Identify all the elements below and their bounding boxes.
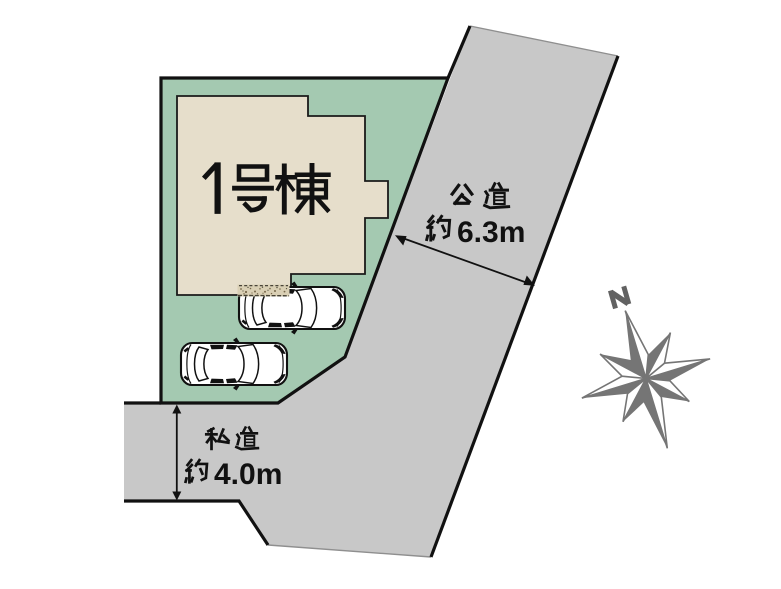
svg-text:4.0m: 4.0m [214, 458, 282, 491]
svg-text:6.3m: 6.3m [457, 216, 525, 249]
